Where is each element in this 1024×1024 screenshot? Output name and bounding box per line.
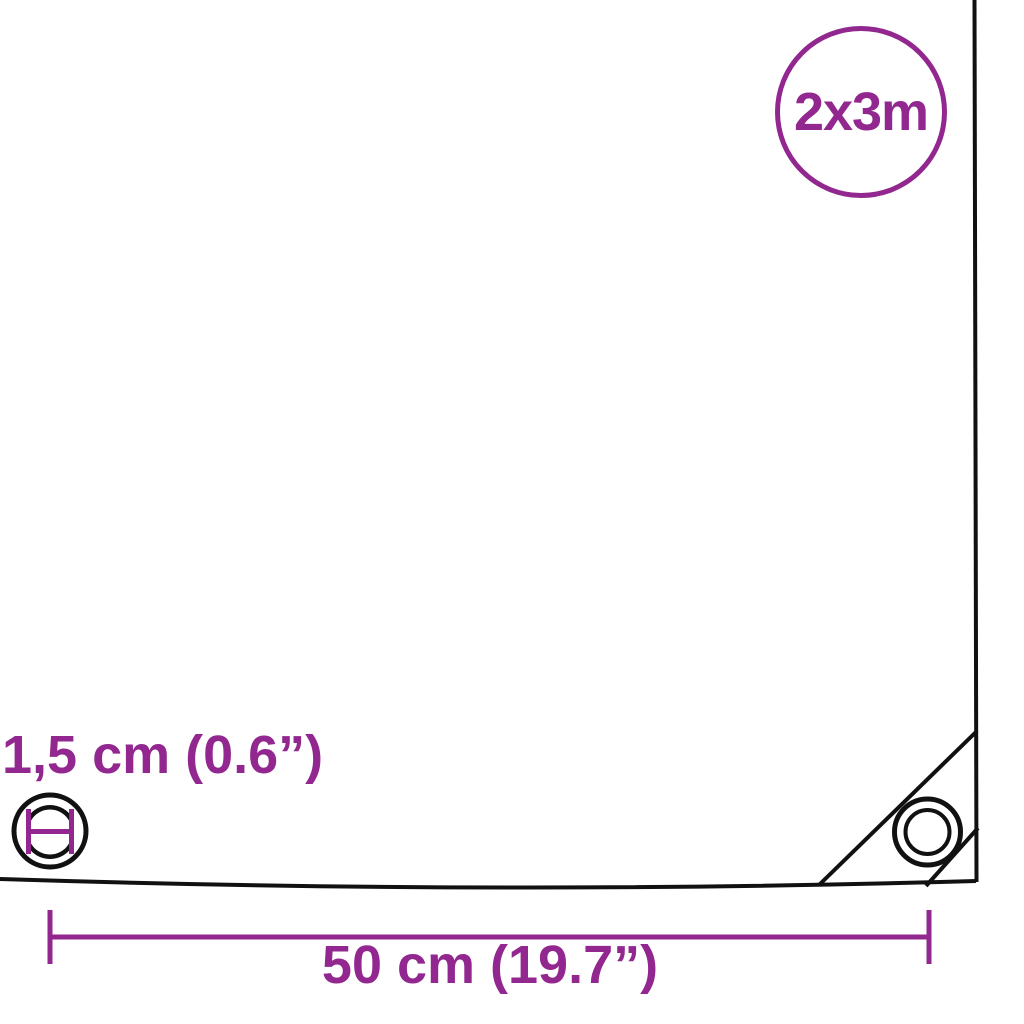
grommet-spacing-label: 50 cm (19.7”) bbox=[50, 938, 930, 992]
grommet-diameter-icon bbox=[14, 795, 86, 867]
tarp-bottom-edge-line bbox=[0, 879, 976, 888]
grommet-diameter-label: 1,5 cm (0.6”) bbox=[2, 728, 323, 782]
grommet-inner-ring-bottom-arc bbox=[29, 844, 71, 857]
diameter-caliper-mark bbox=[29, 809, 72, 854]
corner-grommet-inner-ring bbox=[906, 810, 950, 854]
tarp-right-edge-line bbox=[975, 0, 977, 882]
size-badge-label: 2x3m bbox=[794, 81, 928, 143]
corner-grommet-icon bbox=[895, 799, 961, 865]
grommet-inner-ring-top-arc bbox=[29, 807, 71, 820]
corner-reinforcement-patch bbox=[819, 731, 978, 886]
product-dimension-diagram: 2x3m 1,5 cm (0.6”) 50 cm (19.7”) bbox=[0, 0, 1024, 1024]
size-badge: 2x3m bbox=[775, 26, 947, 198]
